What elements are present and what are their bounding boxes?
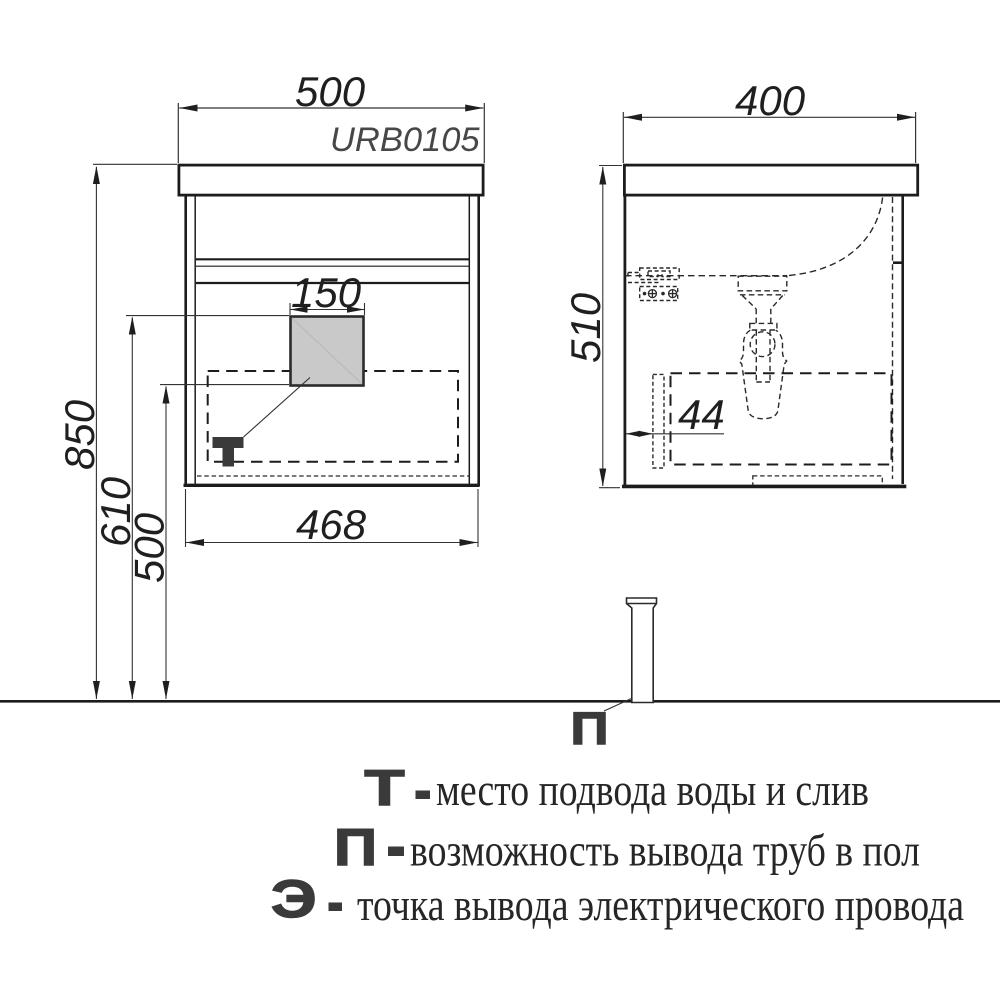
svg-text:точка вывода электрического пр: точка вывода электрического провода — [357, 879, 964, 930]
svg-text:П: П — [571, 703, 609, 754]
svg-text:500: 500 — [295, 68, 366, 115]
svg-text:850: 850 — [56, 399, 103, 470]
svg-text:Т: Т — [365, 760, 405, 816]
svg-text:возможность вывода труб в пол: возможность вывода труб в пол — [410, 825, 920, 876]
svg-text:468: 468 — [296, 501, 367, 548]
svg-text:П: П — [334, 819, 377, 877]
svg-text:44: 44 — [678, 391, 725, 438]
svg-text:URB0105: URB0105 — [330, 121, 480, 159]
svg-text:150: 150 — [291, 269, 362, 316]
svg-text:510: 510 — [562, 292, 609, 363]
svg-text:место подвода воды и слив: место подвода воды и слив — [436, 764, 869, 815]
svg-text:Э: Э — [271, 870, 317, 929]
svg-text:500: 500 — [126, 512, 173, 583]
svg-text:400: 400 — [735, 77, 806, 124]
